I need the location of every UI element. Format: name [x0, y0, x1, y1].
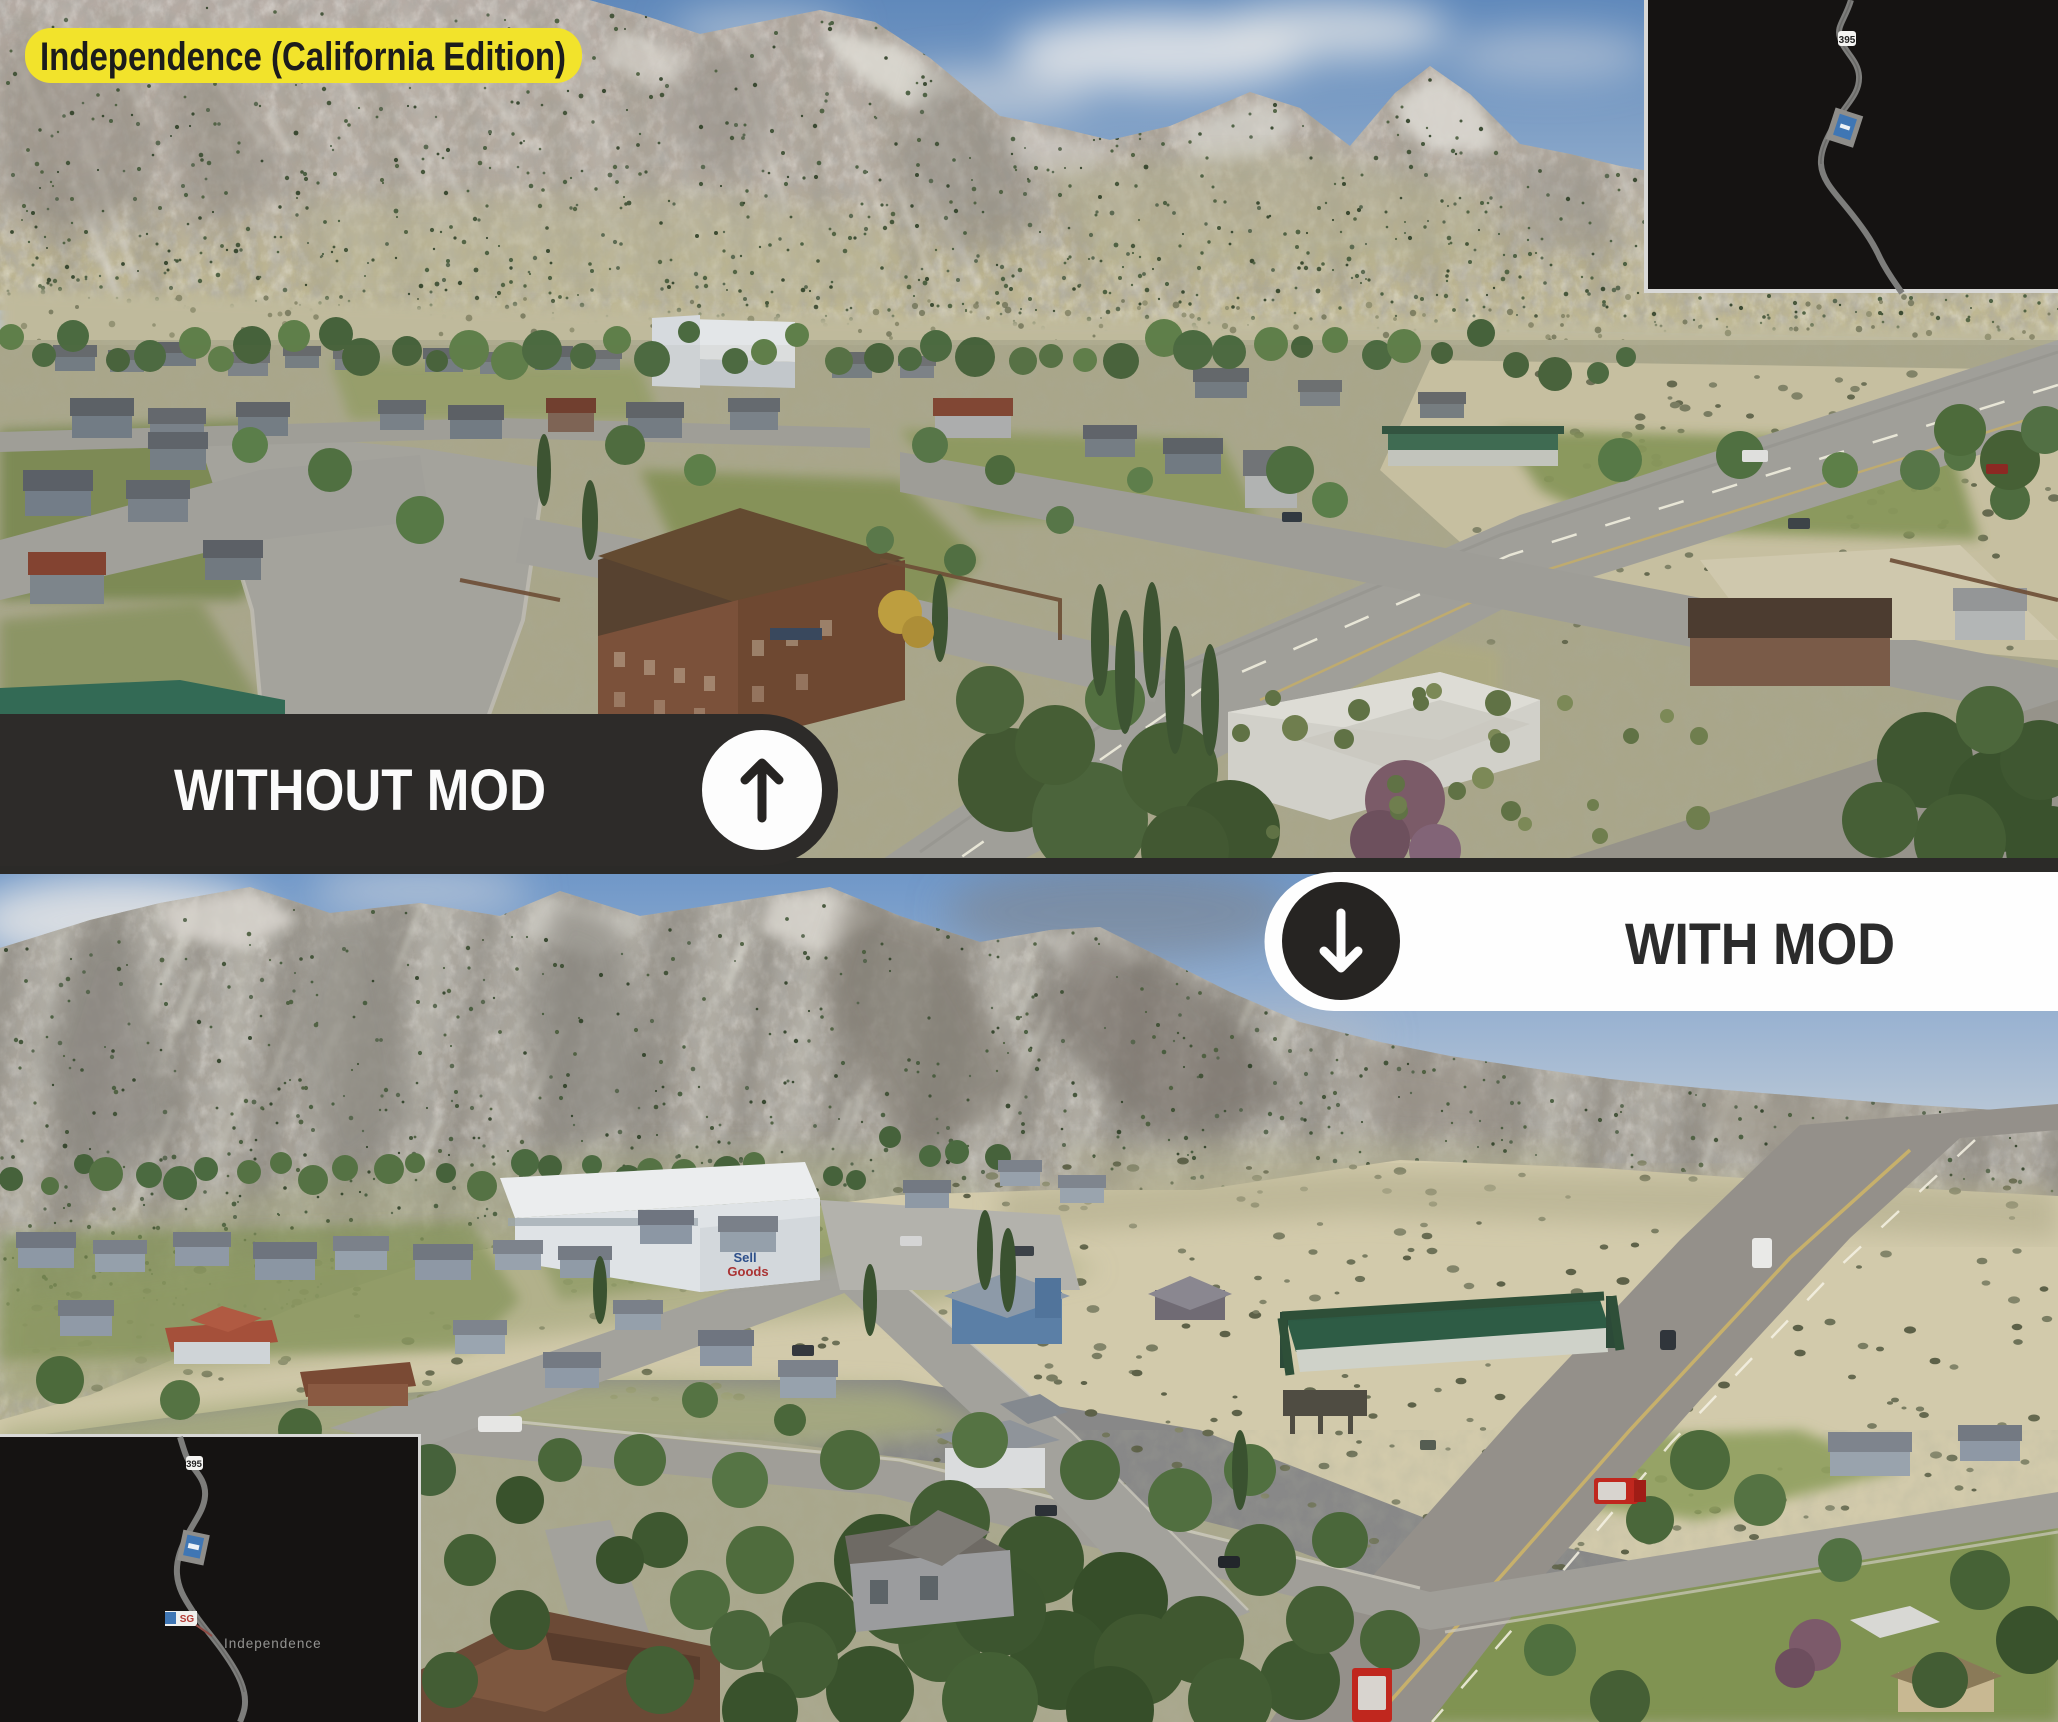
svg-text:SG: SG: [180, 1614, 195, 1625]
svg-text:Independence: Independence: [224, 1636, 322, 1651]
svg-text:WITH MOD: WITH MOD: [1625, 912, 1895, 977]
svg-text:395: 395: [1839, 35, 1856, 46]
svg-text:395: 395: [186, 1459, 203, 1470]
svg-text:Independence (California Editi: Independence (California Edition): [40, 35, 566, 79]
svg-text:Sell: Sell: [733, 1250, 756, 1265]
svg-text:Goods: Goods: [727, 1264, 768, 1279]
svg-text:WITHOUT MOD: WITHOUT MOD: [174, 758, 546, 823]
